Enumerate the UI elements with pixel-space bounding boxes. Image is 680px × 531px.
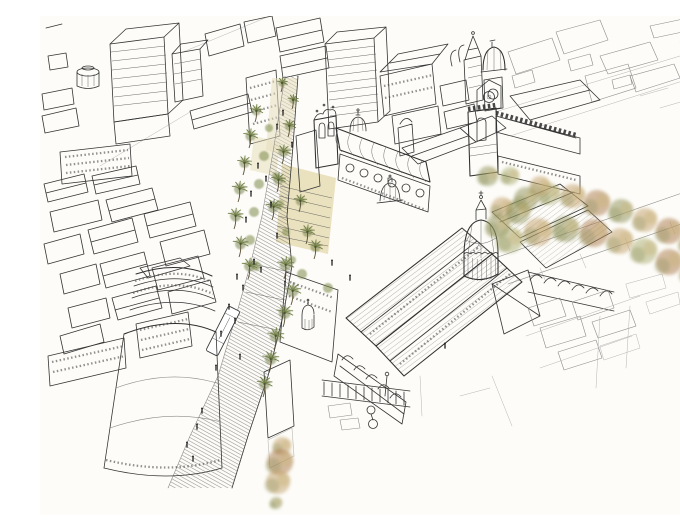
shrub (265, 124, 273, 132)
sketch-canvas (40, 16, 680, 515)
shrub (282, 228, 290, 236)
shrub (249, 207, 259, 217)
paper-background (40, 16, 680, 515)
shrub (254, 179, 264, 189)
shrub (245, 235, 255, 245)
shrub (259, 151, 269, 161)
shrub (297, 269, 307, 279)
shrub (323, 283, 333, 293)
architectural-sketch (40, 16, 680, 515)
